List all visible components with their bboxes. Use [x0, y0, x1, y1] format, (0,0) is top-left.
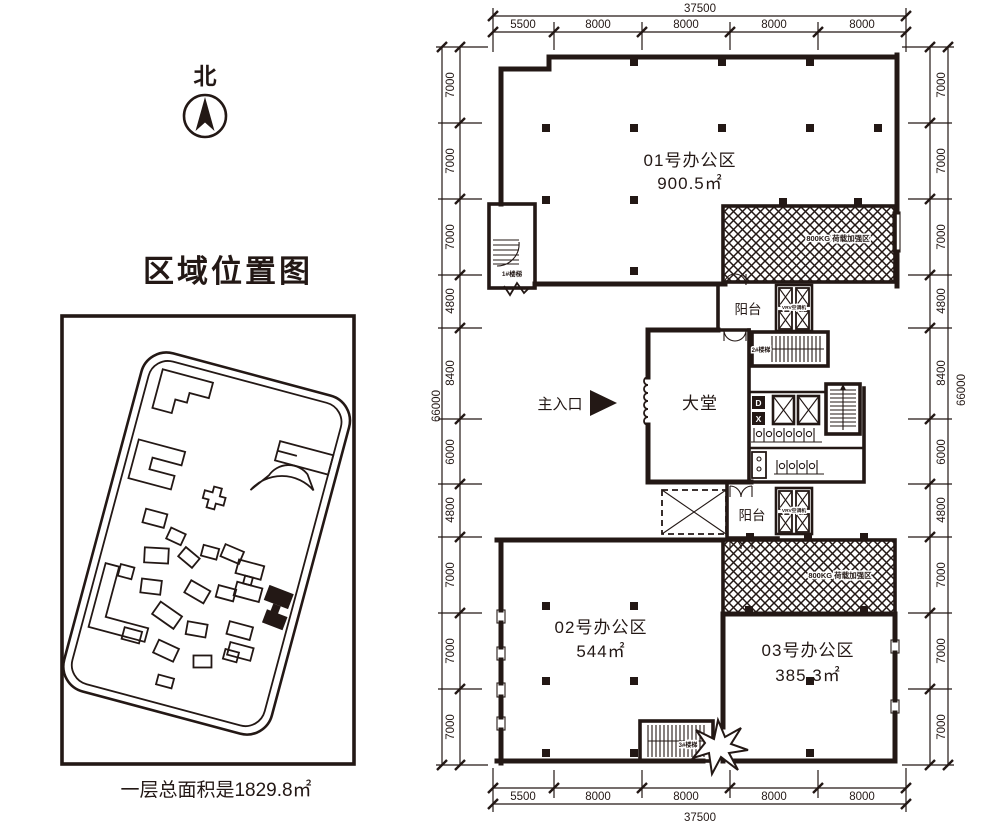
wc-stalls-north	[751, 428, 822, 442]
stair-1-label: 1#楼梯	[502, 269, 523, 278]
dim-top-seg-1: 8000	[585, 19, 611, 31]
dim-right-seg-5: 6000	[936, 439, 948, 465]
dim-right-seg-9: 7000	[936, 714, 948, 740]
dim-top-seg-4: 8000	[849, 19, 875, 31]
dim-right-seg-4: 8400	[936, 360, 948, 386]
location-map: 区域位置图	[58, 254, 356, 801]
office-03-name: 03号办公区	[762, 641, 855, 660]
wc-stalls-south	[752, 452, 824, 478]
dim-left-seg-8: 7000	[445, 638, 457, 664]
office-01-area: 900.5㎡	[657, 174, 723, 193]
vrv-unit-top: VRV空调机	[776, 285, 812, 331]
north-arrow: 北	[184, 63, 226, 137]
break-mark	[693, 720, 748, 774]
stair-2: 2#楼梯	[752, 332, 828, 366]
dimension-top: 37500 5500 8000 8000 8000 8000	[488, 3, 911, 52]
building-l-shape	[89, 563, 162, 642]
dim-right-seg-6: 4800	[936, 497, 948, 523]
dim-left-seg-2: 7000	[445, 224, 457, 250]
dim-top-seg-3: 8000	[761, 19, 787, 31]
stair-2-label: 2#楼梯	[752, 346, 771, 354]
entrance-arrow-icon	[590, 390, 617, 416]
building-outline	[152, 369, 213, 421]
dim-left-seg-3: 4800	[445, 288, 457, 314]
north-label: 北	[194, 63, 217, 89]
lobby: 大堂	[644, 330, 751, 482]
dim-right-total: 66000	[956, 374, 968, 406]
dim-right-seg-1: 7000	[936, 148, 948, 174]
dimension-left: 66000 7000 7000 7000 4800 8400 6000 4800…	[431, 42, 488, 770]
dim-left-total: 66000	[431, 390, 443, 422]
building-outline	[201, 484, 228, 511]
north-pointer	[196, 97, 215, 131]
dim-left-seg-4: 8400	[445, 360, 457, 386]
office-02-area: 544㎡	[576, 642, 625, 661]
stair-1: 1#楼梯	[489, 204, 535, 295]
dim-top-seg-0: 5500	[510, 19, 536, 31]
load-zone-bottom: 800KG 荷载加强区	[723, 533, 895, 614]
dim-bottom-total: 37500	[684, 812, 716, 824]
dim-right-seg-2: 7000	[936, 224, 948, 250]
core-mark-x: X	[756, 414, 762, 424]
office-01-name: 01号办公区	[644, 151, 737, 170]
load-zone-top: 800KG 荷载加强区	[723, 198, 895, 282]
office-03-area: 385.3㎡	[775, 666, 841, 685]
core-mark-d: D	[755, 398, 761, 408]
dimension-right: 66000 7000 7000 7000 4800 8400 6000 4800…	[902, 42, 968, 770]
main-entrance: 主入口	[537, 390, 617, 416]
dim-right-seg-0: 7000	[936, 72, 948, 98]
dim-bottom-seg-4: 8000	[849, 791, 875, 803]
dim-bottom-seg-1: 8000	[585, 791, 611, 803]
vrv-bottom-label: VRV空调机	[782, 507, 806, 514]
main-entrance-label: 主入口	[537, 396, 582, 413]
dim-bottom-seg-3: 8000	[761, 791, 787, 803]
dimension-bottom: 37500 5500 8000 8000 8000 8000	[488, 768, 911, 824]
vrv-unit-bottom: VRV空调机	[776, 488, 812, 534]
dim-left-seg-6: 4800	[445, 497, 457, 523]
stair-east	[826, 384, 860, 434]
stair-3: 3#楼梯	[640, 720, 748, 774]
dim-left-seg-0: 7000	[445, 72, 457, 98]
stair-3-label: 3#楼梯	[679, 741, 698, 749]
lobby-label: 大堂	[682, 394, 718, 413]
dim-left-seg-7: 7000	[445, 562, 457, 588]
office-03-zone: 03号办公区 385.3㎡	[723, 606, 899, 761]
balcony-top-label: 阳台	[735, 302, 762, 317]
site-plan	[58, 347, 356, 741]
floor-plan-drawing: 北 区域位置图	[0, 0, 1000, 829]
vrv-top-label: VRV空调机	[782, 304, 806, 311]
location-map-title: 区域位置图	[143, 254, 313, 289]
dim-right-seg-8: 7000	[936, 638, 948, 664]
balcony-bottom-label: 阳台	[739, 508, 766, 523]
dim-left-seg-5: 6000	[445, 439, 457, 465]
building-h-pair	[230, 559, 268, 602]
load-zone-top-label: 800KG 荷载加强区	[806, 233, 870, 243]
building-outline	[128, 439, 185, 490]
dim-right-seg-7: 7000	[936, 562, 948, 588]
dim-right-seg-3: 4800	[936, 288, 948, 314]
elevator-shafts	[773, 396, 819, 424]
dim-top-total: 37500	[684, 3, 716, 15]
canopy-skylight	[662, 490, 726, 534]
office-02-name: 02号办公区	[555, 618, 648, 637]
dim-left-seg-1: 7000	[445, 148, 457, 174]
dim-bottom-seg-2: 8000	[673, 791, 699, 803]
dim-bottom-seg-0: 5500	[510, 791, 536, 803]
load-zone-bottom-label: 800KG 荷载加强区	[808, 570, 872, 580]
dim-top-seg-2: 8000	[673, 19, 699, 31]
dim-left-seg-9: 7000	[445, 714, 457, 740]
total-area-note: 一层总面积是1829.8㎡	[120, 778, 311, 801]
